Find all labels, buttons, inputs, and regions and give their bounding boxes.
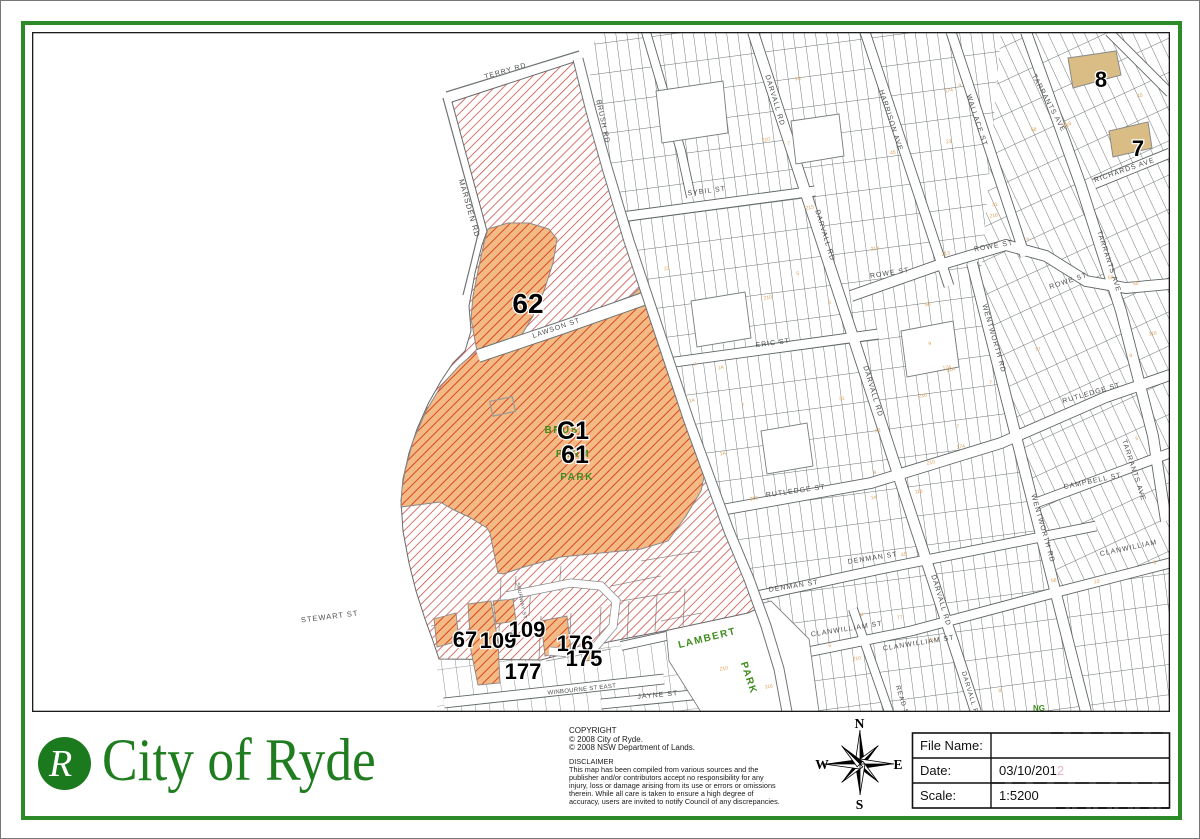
svg-text:210: 210 <box>989 212 998 219</box>
svg-text:S: S <box>856 797 864 812</box>
svg-text:67: 67 <box>453 627 477 652</box>
svg-text:03/10/2012: 03/10/2012 <box>999 763 1064 778</box>
svg-text:116: 116 <box>1148 330 1157 337</box>
svg-text:Date:: Date: <box>920 763 951 778</box>
svg-text:116: 116 <box>914 488 923 495</box>
svg-text:Scale:: Scale: <box>920 788 956 803</box>
svg-text:23: 23 <box>946 139 953 146</box>
svg-text:210: 210 <box>749 495 758 502</box>
svg-text:W: W <box>815 757 829 772</box>
svg-text:58: 58 <box>1051 578 1058 585</box>
svg-text:177: 177 <box>505 659 542 684</box>
svg-text:61: 61 <box>561 441 589 469</box>
svg-text:45: 45 <box>901 552 908 559</box>
svg-text:58: 58 <box>1133 281 1140 288</box>
svg-text:109: 109 <box>509 617 546 642</box>
svg-text:116: 116 <box>764 683 773 690</box>
svg-text:210: 210 <box>852 655 861 662</box>
svg-text:58: 58 <box>925 302 932 309</box>
svg-text:210: 210 <box>761 136 770 143</box>
svg-text:174: 174 <box>956 443 965 450</box>
svg-text:PARK: PARK <box>560 472 594 483</box>
svg-text:45: 45 <box>1137 93 1144 100</box>
svg-text:62: 62 <box>512 288 543 319</box>
svg-text:23: 23 <box>875 428 882 435</box>
svg-text:File Name:: File Name: <box>920 738 983 753</box>
svg-text:174: 174 <box>942 364 951 371</box>
svg-text:174: 174 <box>944 87 953 94</box>
svg-text:31: 31 <box>992 202 999 209</box>
svg-text:N: N <box>855 716 865 731</box>
svg-text:23: 23 <box>664 266 671 273</box>
svg-text:45: 45 <box>890 150 897 157</box>
svg-text:213: 213 <box>941 250 950 257</box>
svg-text:7: 7 <box>1132 136 1144 161</box>
svg-text:E: E <box>893 757 902 772</box>
svg-text:213: 213 <box>870 245 879 252</box>
svg-text:210: 210 <box>926 459 935 466</box>
svg-text:23: 23 <box>1094 579 1101 586</box>
svg-text:8: 8 <box>1095 67 1107 92</box>
svg-text:210: 210 <box>719 665 728 672</box>
svg-text:1:5200: 1:5200 <box>999 788 1039 803</box>
svg-text:31: 31 <box>839 396 846 403</box>
svg-text:210: 210 <box>763 294 772 301</box>
svg-text:210: 210 <box>918 392 927 399</box>
svg-text:77: 77 <box>897 615 904 622</box>
svg-text:77: 77 <box>1035 347 1042 354</box>
svg-text:175: 175 <box>566 646 603 671</box>
svg-text:58: 58 <box>1031 127 1038 134</box>
